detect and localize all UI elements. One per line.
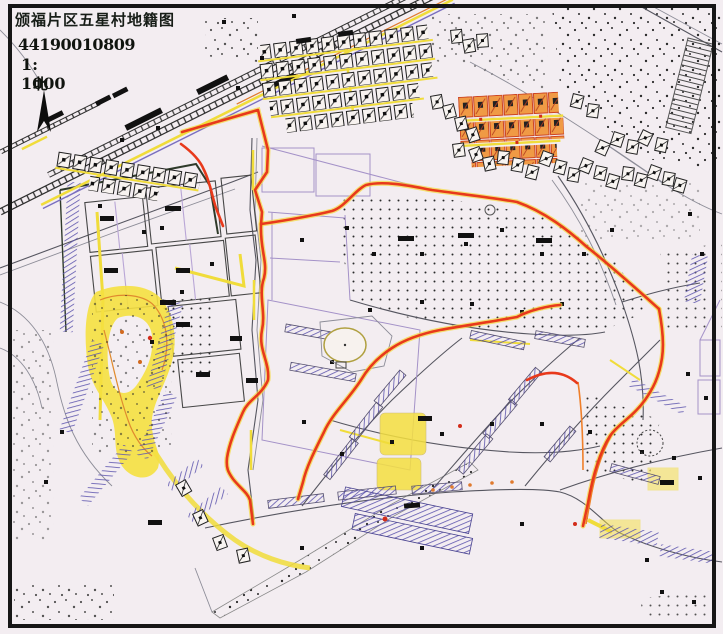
map-canvas: [0, 0, 723, 634]
cadastral-map-sheet: 颁福片区五星村地籍图 44190010809 1: 1000 北: [0, 0, 723, 634]
north-label: 北: [33, 73, 48, 94]
hill-area: [86, 286, 184, 478]
map-title: 颁福片区五星村地籍图: [15, 9, 215, 30]
sheet-number: 44190010809: [18, 35, 135, 54]
